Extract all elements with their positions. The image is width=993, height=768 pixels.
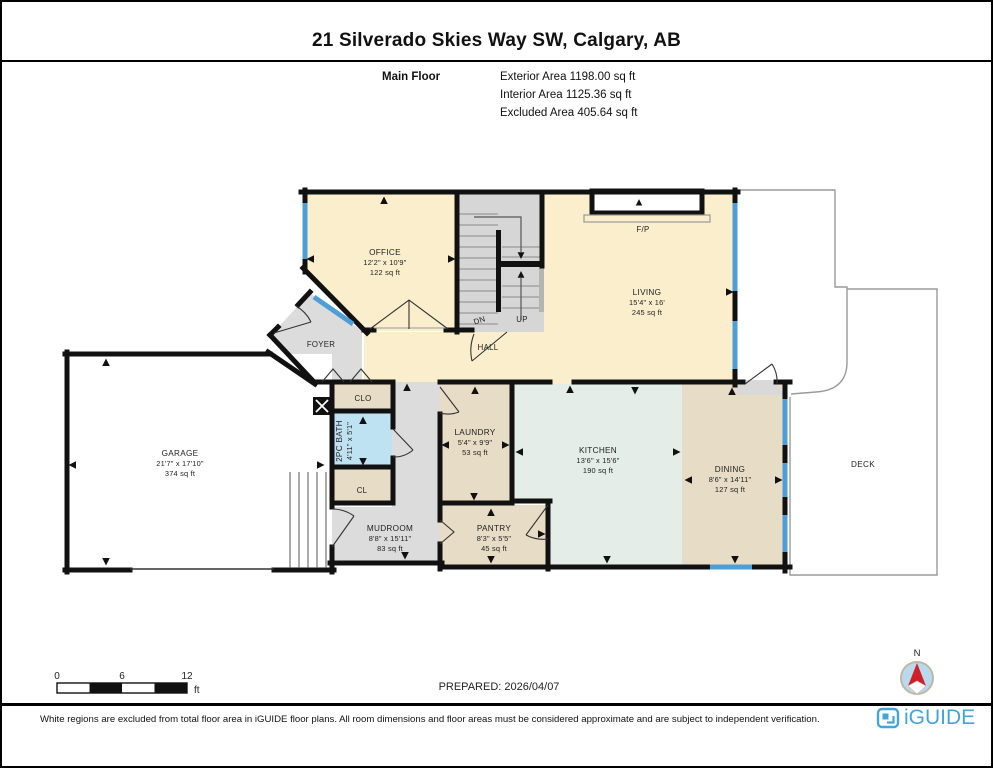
bath-label: 2PC BATH (335, 420, 344, 462)
kitchen-label: KITCHEN (579, 446, 617, 455)
dining-dims: 8'6" x 14'11" (709, 475, 752, 484)
pantry-label: PANTRY (477, 524, 511, 533)
bath-dims: 4'11" x 5'1" (345, 422, 354, 460)
pantry-area: 45 sq ft (481, 544, 507, 553)
compass: N (901, 648, 933, 694)
garage-area: 374 sq ft (165, 469, 195, 478)
closet2-label: CL (357, 486, 368, 495)
dining-area: 127 sq ft (715, 485, 745, 494)
scale-tick-12: 12 (181, 671, 193, 682)
office-label: OFFICE (369, 248, 401, 257)
garage-dims: 21'7" x 17'10" (156, 459, 204, 468)
deck-outline (790, 289, 937, 575)
mudroom-area: 83 sq ft (377, 544, 403, 553)
living-area: 245 sq ft (632, 308, 662, 317)
kitchen-area: 190 sq ft (583, 466, 613, 475)
kitchen-dims: 13'6" x 15'6" (576, 456, 619, 465)
prepared-date: PREPARED: 2026/04/07 (439, 681, 560, 693)
deck-label: DECK (851, 460, 875, 469)
mudroom-label: MUDROOM (367, 524, 413, 533)
scale-bar: 0 6 12 ft (54, 671, 200, 696)
living-dims: 15'4" x 16' (629, 298, 665, 307)
footer-disclaimer: White regions are excluded from total fl… (40, 714, 820, 725)
mudroom-dims: 8'8" x 15'11" (369, 534, 412, 543)
stairs-rail (539, 268, 544, 312)
closet-label: CLO (355, 394, 372, 403)
scale-tick-6: 6 (119, 671, 125, 682)
stairs-divider-wall (496, 230, 501, 312)
fireplace-label: F/P (636, 225, 649, 234)
office-area: 122 sq ft (370, 268, 400, 277)
garage-label: GARAGE (162, 449, 199, 458)
stairs-up-label: UP (516, 315, 527, 324)
iguide-icon (876, 706, 900, 730)
laundry-area: 53 sq ft (462, 448, 488, 457)
office-dims: 12'2" x 10'9" (363, 258, 406, 267)
laundry-label: LAUNDRY (454, 428, 495, 437)
pantry-dims: 8'3" x 5'5" (477, 534, 512, 543)
brand-logo: iGUIDE (876, 706, 975, 730)
utility-box (313, 397, 331, 415)
scale-unit: ft (194, 685, 200, 696)
hall-label: HALL (478, 343, 499, 352)
footer-divider (2, 703, 991, 706)
stairs-landing-wall (496, 261, 544, 267)
compass-north-label: N (914, 648, 921, 659)
laundry-dims: 5'4" x 9'9" (458, 438, 493, 447)
foyer-label: FOYER (307, 340, 335, 349)
scale-tick-0: 0 (54, 671, 60, 682)
brand-name: iGUIDE (904, 706, 975, 730)
living-label: LIVING (633, 288, 662, 297)
dining-label: DINING (715, 465, 745, 474)
floorplan-drawing: OFFICE 12'2" x 10'9" 122 sq ft LIVING 15… (2, 2, 991, 766)
porch-outline (735, 190, 847, 394)
floorplan-page: 21 Silverado Skies Way SW, Calgary, AB M… (0, 0, 993, 768)
